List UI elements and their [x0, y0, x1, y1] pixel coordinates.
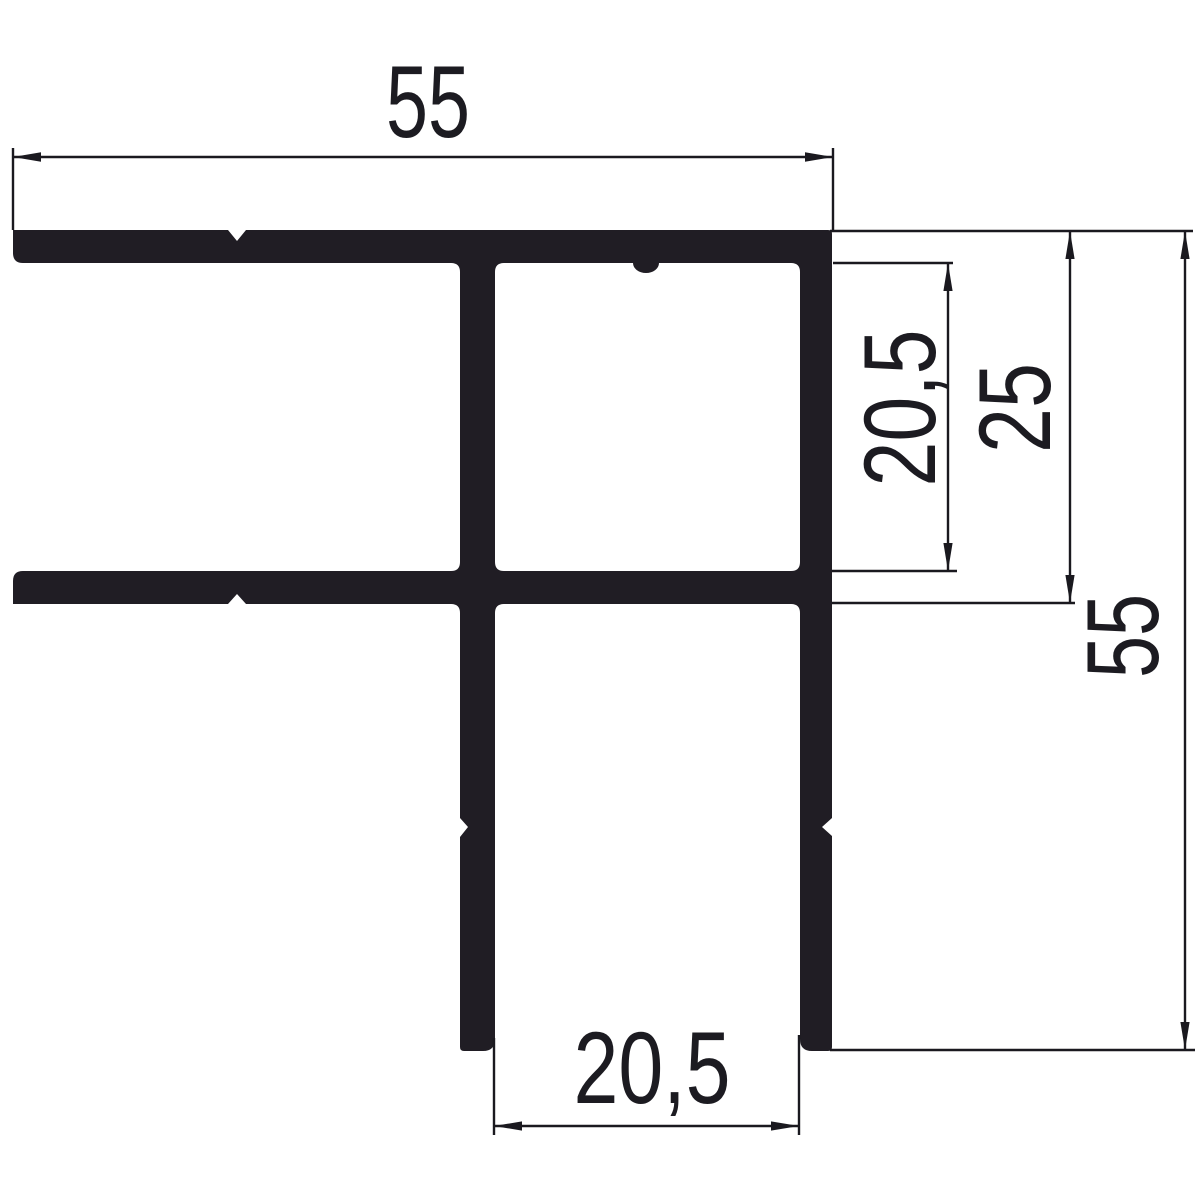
drawing-canvas: 55 20,5 25 55 20,5 — [0, 0, 1200, 1200]
profile-top-flange — [13, 230, 832, 273]
dim-label-bottom-channel: 20,5 — [574, 1011, 731, 1125]
profile-technical-drawing: 55 20,5 25 55 20,5 — [0, 0, 1200, 1200]
profile-corner-fillets — [451, 263, 800, 613]
arrowhead-bottom-left — [494, 1121, 522, 1130]
profile-middle-flange — [13, 571, 800, 604]
arrowhead-bottom-right — [771, 1121, 799, 1130]
dim-label-right-inner-gap: 20,5 — [843, 330, 957, 487]
profile-middle-web — [460, 263, 495, 1051]
dimension-arrowheads — [13, 152, 1190, 1130]
dim-label-right-outer-gap: 25 — [958, 363, 1072, 453]
profile-right-web — [800, 234, 832, 1051]
arrowhead-right-height-up — [1180, 231, 1189, 259]
dim-label-right-height: 55 — [1066, 594, 1180, 678]
profile-shape — [13, 230, 832, 1051]
dim-label-top-width: 55 — [386, 45, 470, 159]
arrowhead-top-left — [13, 152, 41, 162]
arrowhead-top-right — [805, 152, 833, 162]
dim-top-width-lines — [13, 148, 833, 230]
arrowhead-right-inner-up — [943, 263, 952, 291]
arrowhead-right-outer-up — [1065, 231, 1074, 259]
dimension-lines — [13, 148, 1195, 1135]
arrowhead-right-inner-down — [943, 543, 952, 571]
arrowhead-right-height-down — [1180, 1022, 1189, 1050]
